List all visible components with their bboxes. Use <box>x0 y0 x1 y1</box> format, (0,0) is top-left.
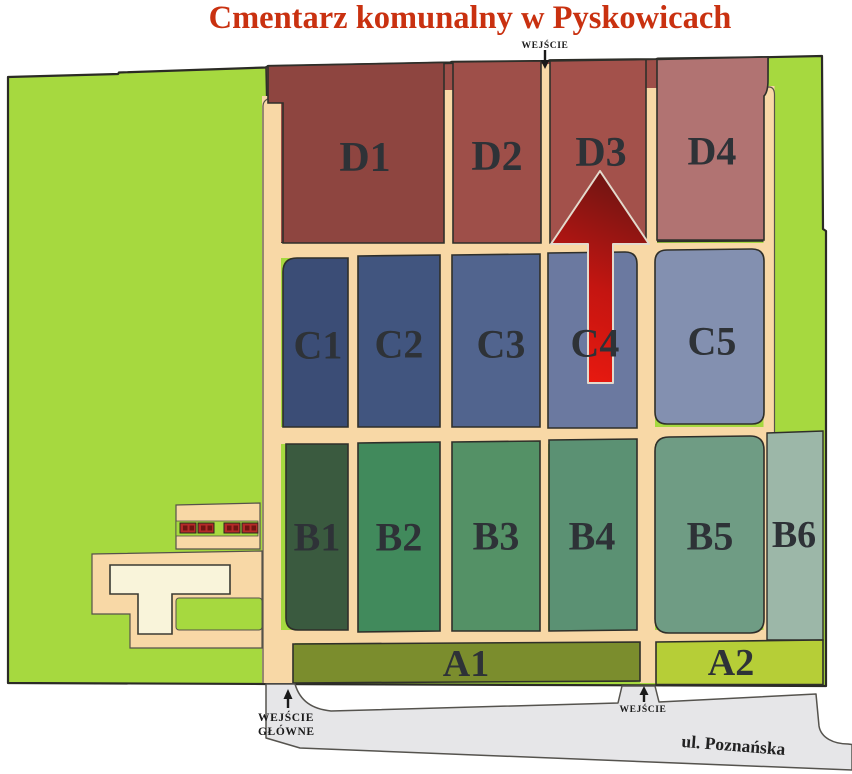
main-entrance-label-line2: GŁÓWNE <box>258 724 315 738</box>
section-D1-label: D1 <box>339 135 390 181</box>
section-D4-label: D4 <box>688 129 737 174</box>
section-A2-label: A2 <box>708 642 754 684</box>
section-C1-label: C1 <box>294 323 343 368</box>
main-entrance-label-line1: WEJŚCIE <box>258 710 314 724</box>
section-D3-label: D3 <box>575 130 626 176</box>
page-title: Cmentarz komunalny w Pyskowicach <box>209 0 732 36</box>
section-B2-label: B2 <box>376 515 423 560</box>
cemetery-map-svg: D1 D2 D3 D4 C1 C2 C3 C4 C5 B1 B2 B3 B4 B… <box>0 0 852 774</box>
section-C5-label: C5 <box>688 319 737 364</box>
section-B5-label: B5 <box>687 514 734 559</box>
section-C3-label: C3 <box>477 322 526 367</box>
section-A1-label: A1 <box>443 643 489 685</box>
section-C4-label: C4 <box>571 321 620 366</box>
section-B4-label: B4 <box>569 514 616 559</box>
north-entrance-label: WEJŚCIE <box>522 39 569 51</box>
service-inner-lawn <box>176 598 262 630</box>
south-entrance-label: WEJŚCIE <box>620 703 667 715</box>
section-B6-label: B6 <box>772 514 816 556</box>
section-C2-label: C2 <box>375 322 424 367</box>
cemetery-map-page: D1 D2 D3 D4 C1 C2 C3 C4 C5 B1 B2 B3 B4 B… <box>0 0 852 774</box>
section-B1-label: B1 <box>294 515 341 560</box>
section-B3-label: B3 <box>473 514 520 559</box>
section-D2-label: D2 <box>471 134 522 180</box>
